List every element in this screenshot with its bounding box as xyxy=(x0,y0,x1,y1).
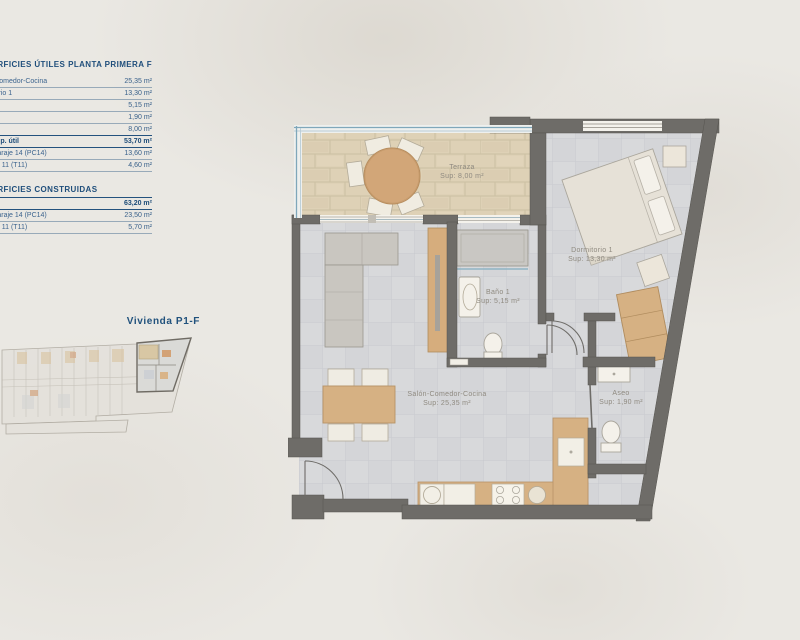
table-row: Total sup. útil53,70 m² xyxy=(0,135,152,148)
row-value: 8,00 m² xyxy=(128,124,152,135)
row-label: Plaza garaje 14 (PC14) xyxy=(0,210,47,221)
table-row: Plaza garaje 14 (PC14)13,60 m² xyxy=(0,148,152,160)
row-value: 4,60 m² xyxy=(128,160,152,171)
row-label: Dormitorio 1 xyxy=(0,88,12,99)
shower xyxy=(457,230,528,269)
key-plan xyxy=(0,333,202,437)
table-row: 63,20 m² xyxy=(0,197,152,210)
aseo-toilet xyxy=(601,421,621,452)
room-label-dormitorio: Dormitorio 1 Sup: 13,30 m² xyxy=(532,246,652,264)
table-row: Trastero 11 (T11)5,70 m² xyxy=(0,222,152,234)
brochure-page: SUPERFICIES ÚTILES PLANTA PRIMERA F Saló… xyxy=(0,0,800,640)
row-label: Salón-Comedor-Cocina xyxy=(0,76,47,87)
nightstand xyxy=(663,146,686,167)
toilet xyxy=(484,333,502,361)
bedroom-window xyxy=(583,121,662,131)
table-row: Baño 15,15 m² xyxy=(0,100,152,112)
row-label: Trastero 11 (T11) xyxy=(0,160,27,171)
row-label: Trastero 11 (T11) xyxy=(0,222,27,233)
built-surfaces-title: SUPERFICIES CONSTRUIDAS xyxy=(0,185,152,194)
room-label-bano: Baño 1 Sup: 5,15 m² xyxy=(438,288,558,306)
room-label-aseo: Aseo Sup: 1,90 m² xyxy=(561,389,681,407)
row-value: 63,20 m² xyxy=(124,198,152,209)
bath-window xyxy=(458,215,520,223)
living-sliding-window xyxy=(320,215,423,223)
surface-table-header: SUPERFICIES ÚTILES PLANTA PRIMERA F xyxy=(0,60,152,69)
table-row: Aseo1,90 m² xyxy=(0,112,152,124)
wall-niche xyxy=(450,359,468,365)
row-value: 1,90 m² xyxy=(128,112,152,123)
floor-title: PLANTA PRIMERA F xyxy=(68,60,152,69)
unit-name-label: Vivienda P1-F xyxy=(96,316,200,327)
surface-table: SUPERFICIES ÚTILES PLANTA PRIMERA F Saló… xyxy=(0,60,152,234)
table-row: Dormitorio 113,30 m² xyxy=(0,88,152,100)
hob xyxy=(492,484,524,506)
row-value: 53,70 m² xyxy=(124,136,152,147)
row-value: 23,50 m² xyxy=(124,210,152,221)
row-label: Plaza garaje 14 (PC14) xyxy=(0,148,47,159)
row-value: 13,60 m² xyxy=(124,148,152,159)
row-value: 25,35 m² xyxy=(124,76,152,87)
aseo-sink xyxy=(598,366,630,382)
useful-surfaces-rows: Salón-Comedor-Cocina25,35 m²Dormitorio 1… xyxy=(0,76,152,172)
row-value: 5,70 m² xyxy=(128,222,152,233)
useful-surfaces-title: SUPERFICIES ÚTILES xyxy=(0,60,65,69)
table-row: Trastero 11 (T11)4,60 m² xyxy=(0,160,152,172)
table-row: Salón-Comedor-Cocina25,35 m² xyxy=(0,76,152,88)
table-row: Plaza garaje 14 (PC14)23,50 m² xyxy=(0,210,152,222)
row-value: 13,30 m² xyxy=(124,88,152,99)
row-value: 5,15 m² xyxy=(128,100,152,111)
room-label-salon: Salón-Comedor-Cocina Sup: 25,35 m² xyxy=(387,390,507,408)
row-label: Total sup. útil xyxy=(0,136,19,147)
built-surfaces-rows: 63,20 m²Plaza garaje 14 (PC14)23,50 m²Tr… xyxy=(0,197,152,234)
room-label-terraza: Terraza Sup: 8,00 m² xyxy=(402,163,522,181)
